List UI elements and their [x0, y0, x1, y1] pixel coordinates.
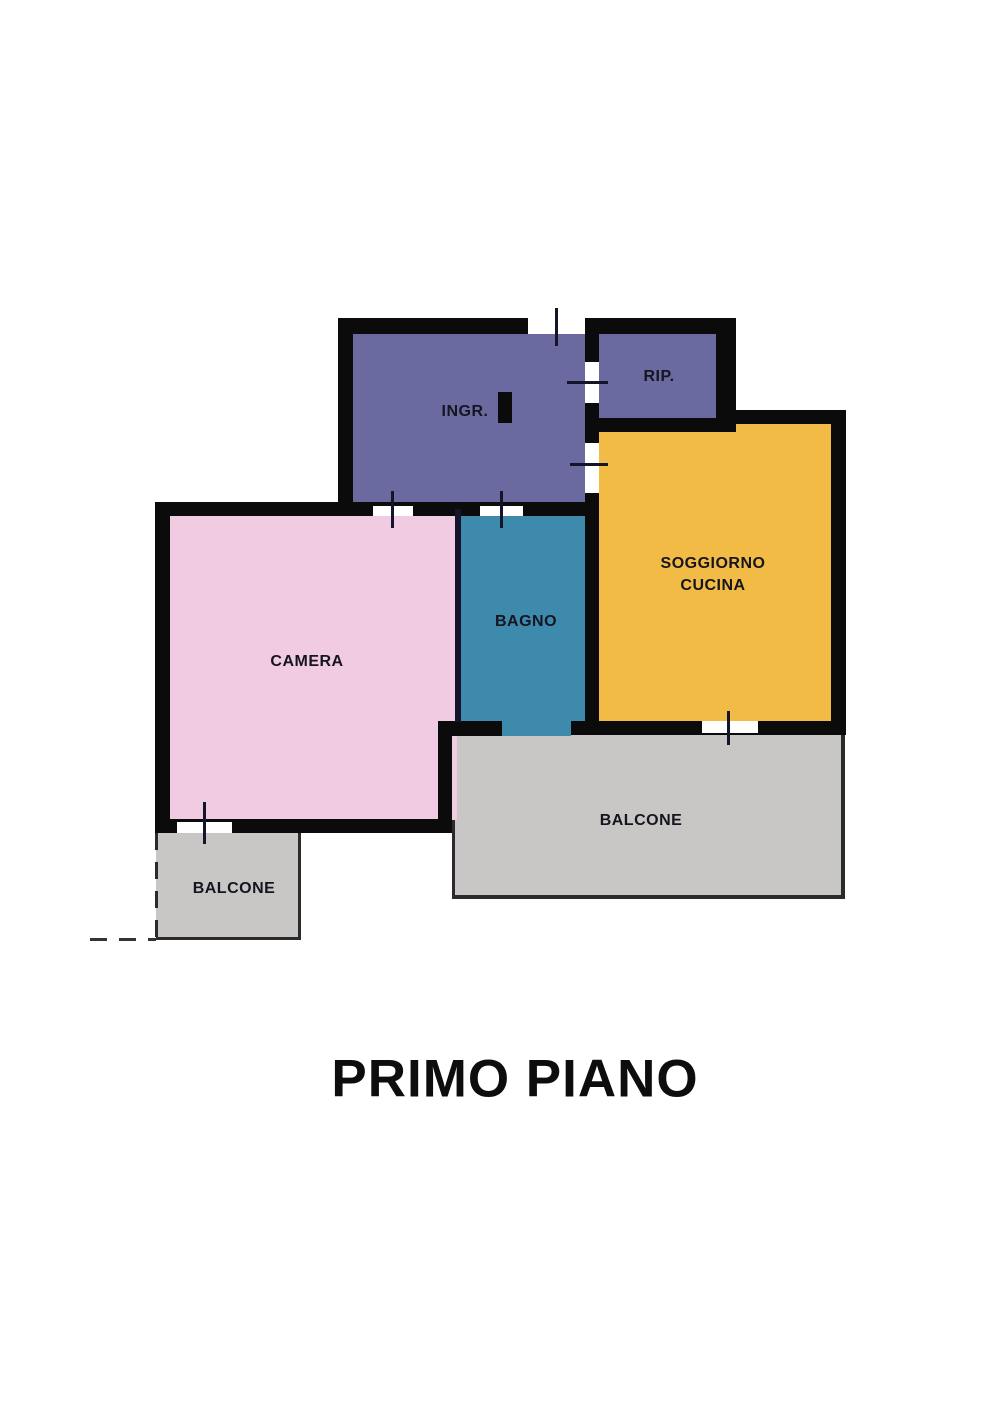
opening-tick-window-camera	[203, 802, 206, 844]
room-ingresso	[352, 333, 586, 518]
opening-tick-door-bagno	[500, 491, 503, 528]
dashed-boundary-line	[90, 938, 156, 941]
room-label-soggiorno-cucina: SOGGIORNO CUCINA	[661, 553, 766, 597]
bagno-balcony-door-opening	[502, 722, 571, 736]
wall-camera-bagno-divider	[455, 509, 461, 722]
room-label-balcone-soggiorno: BALCONE	[600, 812, 683, 830]
opening-tick-door-camera	[391, 491, 394, 528]
dashed-balcony-left-edge	[155, 833, 158, 940]
pillar-ingresso	[498, 392, 512, 423]
room-label-bagno: BAGNO	[495, 613, 557, 631]
room-label-soggiorno-line2: CUCINA	[661, 575, 766, 597]
floor-title: PRIMO PIANO	[331, 1049, 698, 1110]
door-opening-ingresso-soggiorno	[585, 443, 599, 493]
opening-tick-door-ripostiglio	[567, 381, 608, 384]
room-label-ripostiglio: RIP.	[643, 368, 674, 386]
wall-ripostiglio-bottom	[585, 418, 736, 432]
opening-tick-door-soggiorno	[570, 463, 608, 466]
wall-ingresso-left	[338, 318, 353, 516]
wall-soggiorno-top	[716, 410, 846, 424]
room-label-ingresso: INGR.	[442, 403, 489, 421]
wall-camera-right-jog	[438, 721, 452, 833]
floor-plan-page: INGR. RIP. SOGGIORNO CUCINA BAGNO CAMERA…	[0, 0, 1000, 1414]
room-label-camera: CAMERA	[270, 653, 343, 671]
room-label-balcone-camera: BALCONE	[193, 880, 276, 898]
door-opening-soggiorno-balcone	[702, 721, 758, 733]
opening-tick-window-top	[555, 308, 558, 346]
wall-camera-left	[155, 502, 170, 833]
room-label-soggiorno-line1: SOGGIORNO	[661, 553, 766, 575]
opening-tick-door-balcone	[727, 711, 730, 745]
wall-soggiorno-right	[831, 410, 846, 735]
